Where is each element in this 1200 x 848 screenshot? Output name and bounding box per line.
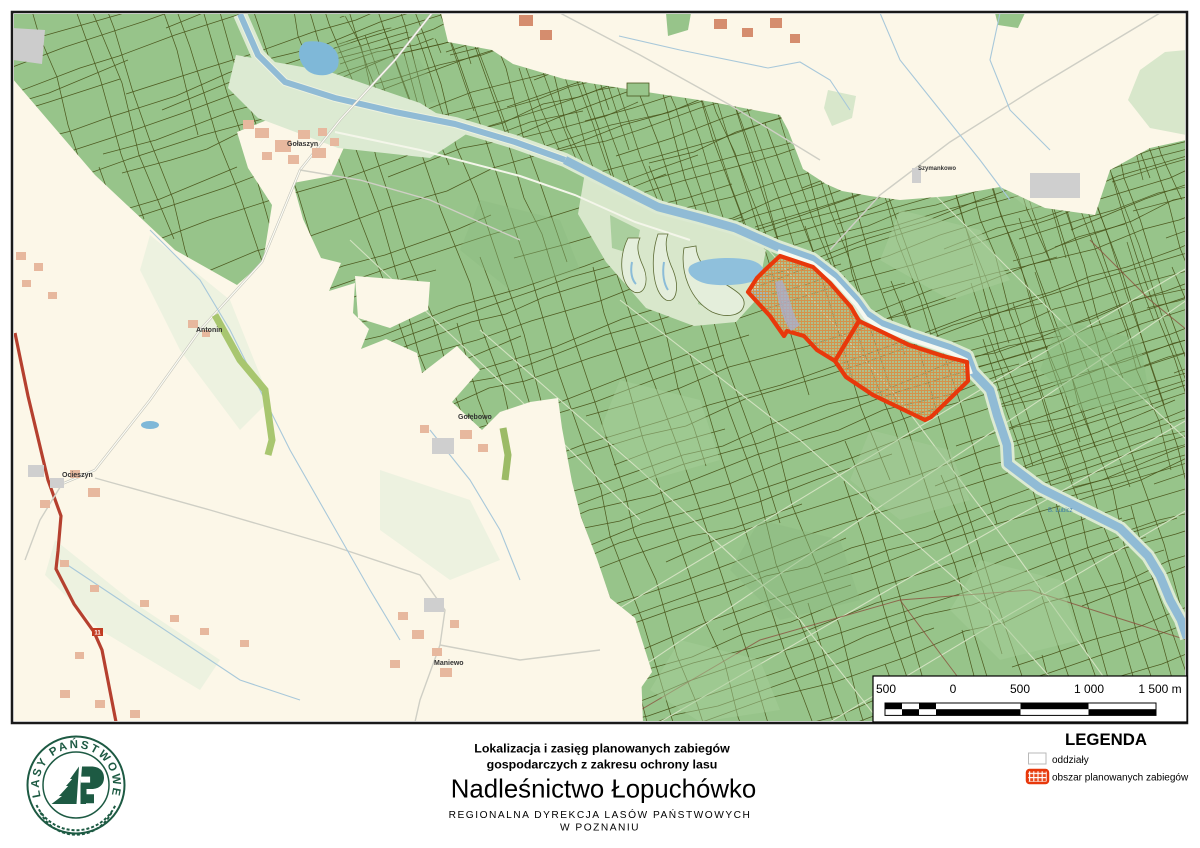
svg-text:Antonin: Antonin xyxy=(196,327,222,334)
svg-text:Maniewo: Maniewo xyxy=(434,660,464,667)
svg-text:11: 11 xyxy=(94,631,101,637)
svg-text:Ocieszyn: Ocieszyn xyxy=(62,472,93,479)
svg-text:Lokalizacja i zasięg planowany: Lokalizacja i zasięg planowanych zabiegó… xyxy=(474,742,730,756)
svg-text:W POZNANIU: W POZNANIU xyxy=(560,823,640,834)
svg-text:1 000: 1 000 xyxy=(1074,682,1104,696)
svg-text:Gołębowo: Gołębowo xyxy=(458,414,492,421)
svg-text:Nadleśnictwo Łopuchówko: Nadleśnictwo Łopuchówko xyxy=(451,776,756,804)
svg-text:500: 500 xyxy=(876,682,896,696)
svg-text:oddziały: oddziały xyxy=(1052,755,1089,766)
svg-text:B. Lubicz: B. Lubicz xyxy=(1048,508,1073,514)
svg-text:REGIONALNA DYREKCJA LASÓW PAŃS: REGIONALNA DYREKCJA LASÓW PAŃSTWOWYCH xyxy=(449,808,752,821)
svg-text:obszar planowanych zabiegów: obszar planowanych zabiegów xyxy=(1052,773,1189,784)
svg-text:Gołaszyn: Gołaszyn xyxy=(287,141,318,148)
svg-text:gospodarczych z zakresu ochron: gospodarczych z zakresu ochrony lasu xyxy=(487,758,718,772)
svg-text:0: 0 xyxy=(950,682,957,696)
svg-text:1 500 m: 1 500 m xyxy=(1138,682,1181,696)
svg-text:500: 500 xyxy=(1010,682,1030,696)
svg-text:LEGENDA: LEGENDA xyxy=(1065,730,1147,749)
svg-text:Szymankowo: Szymankowo xyxy=(918,166,956,172)
